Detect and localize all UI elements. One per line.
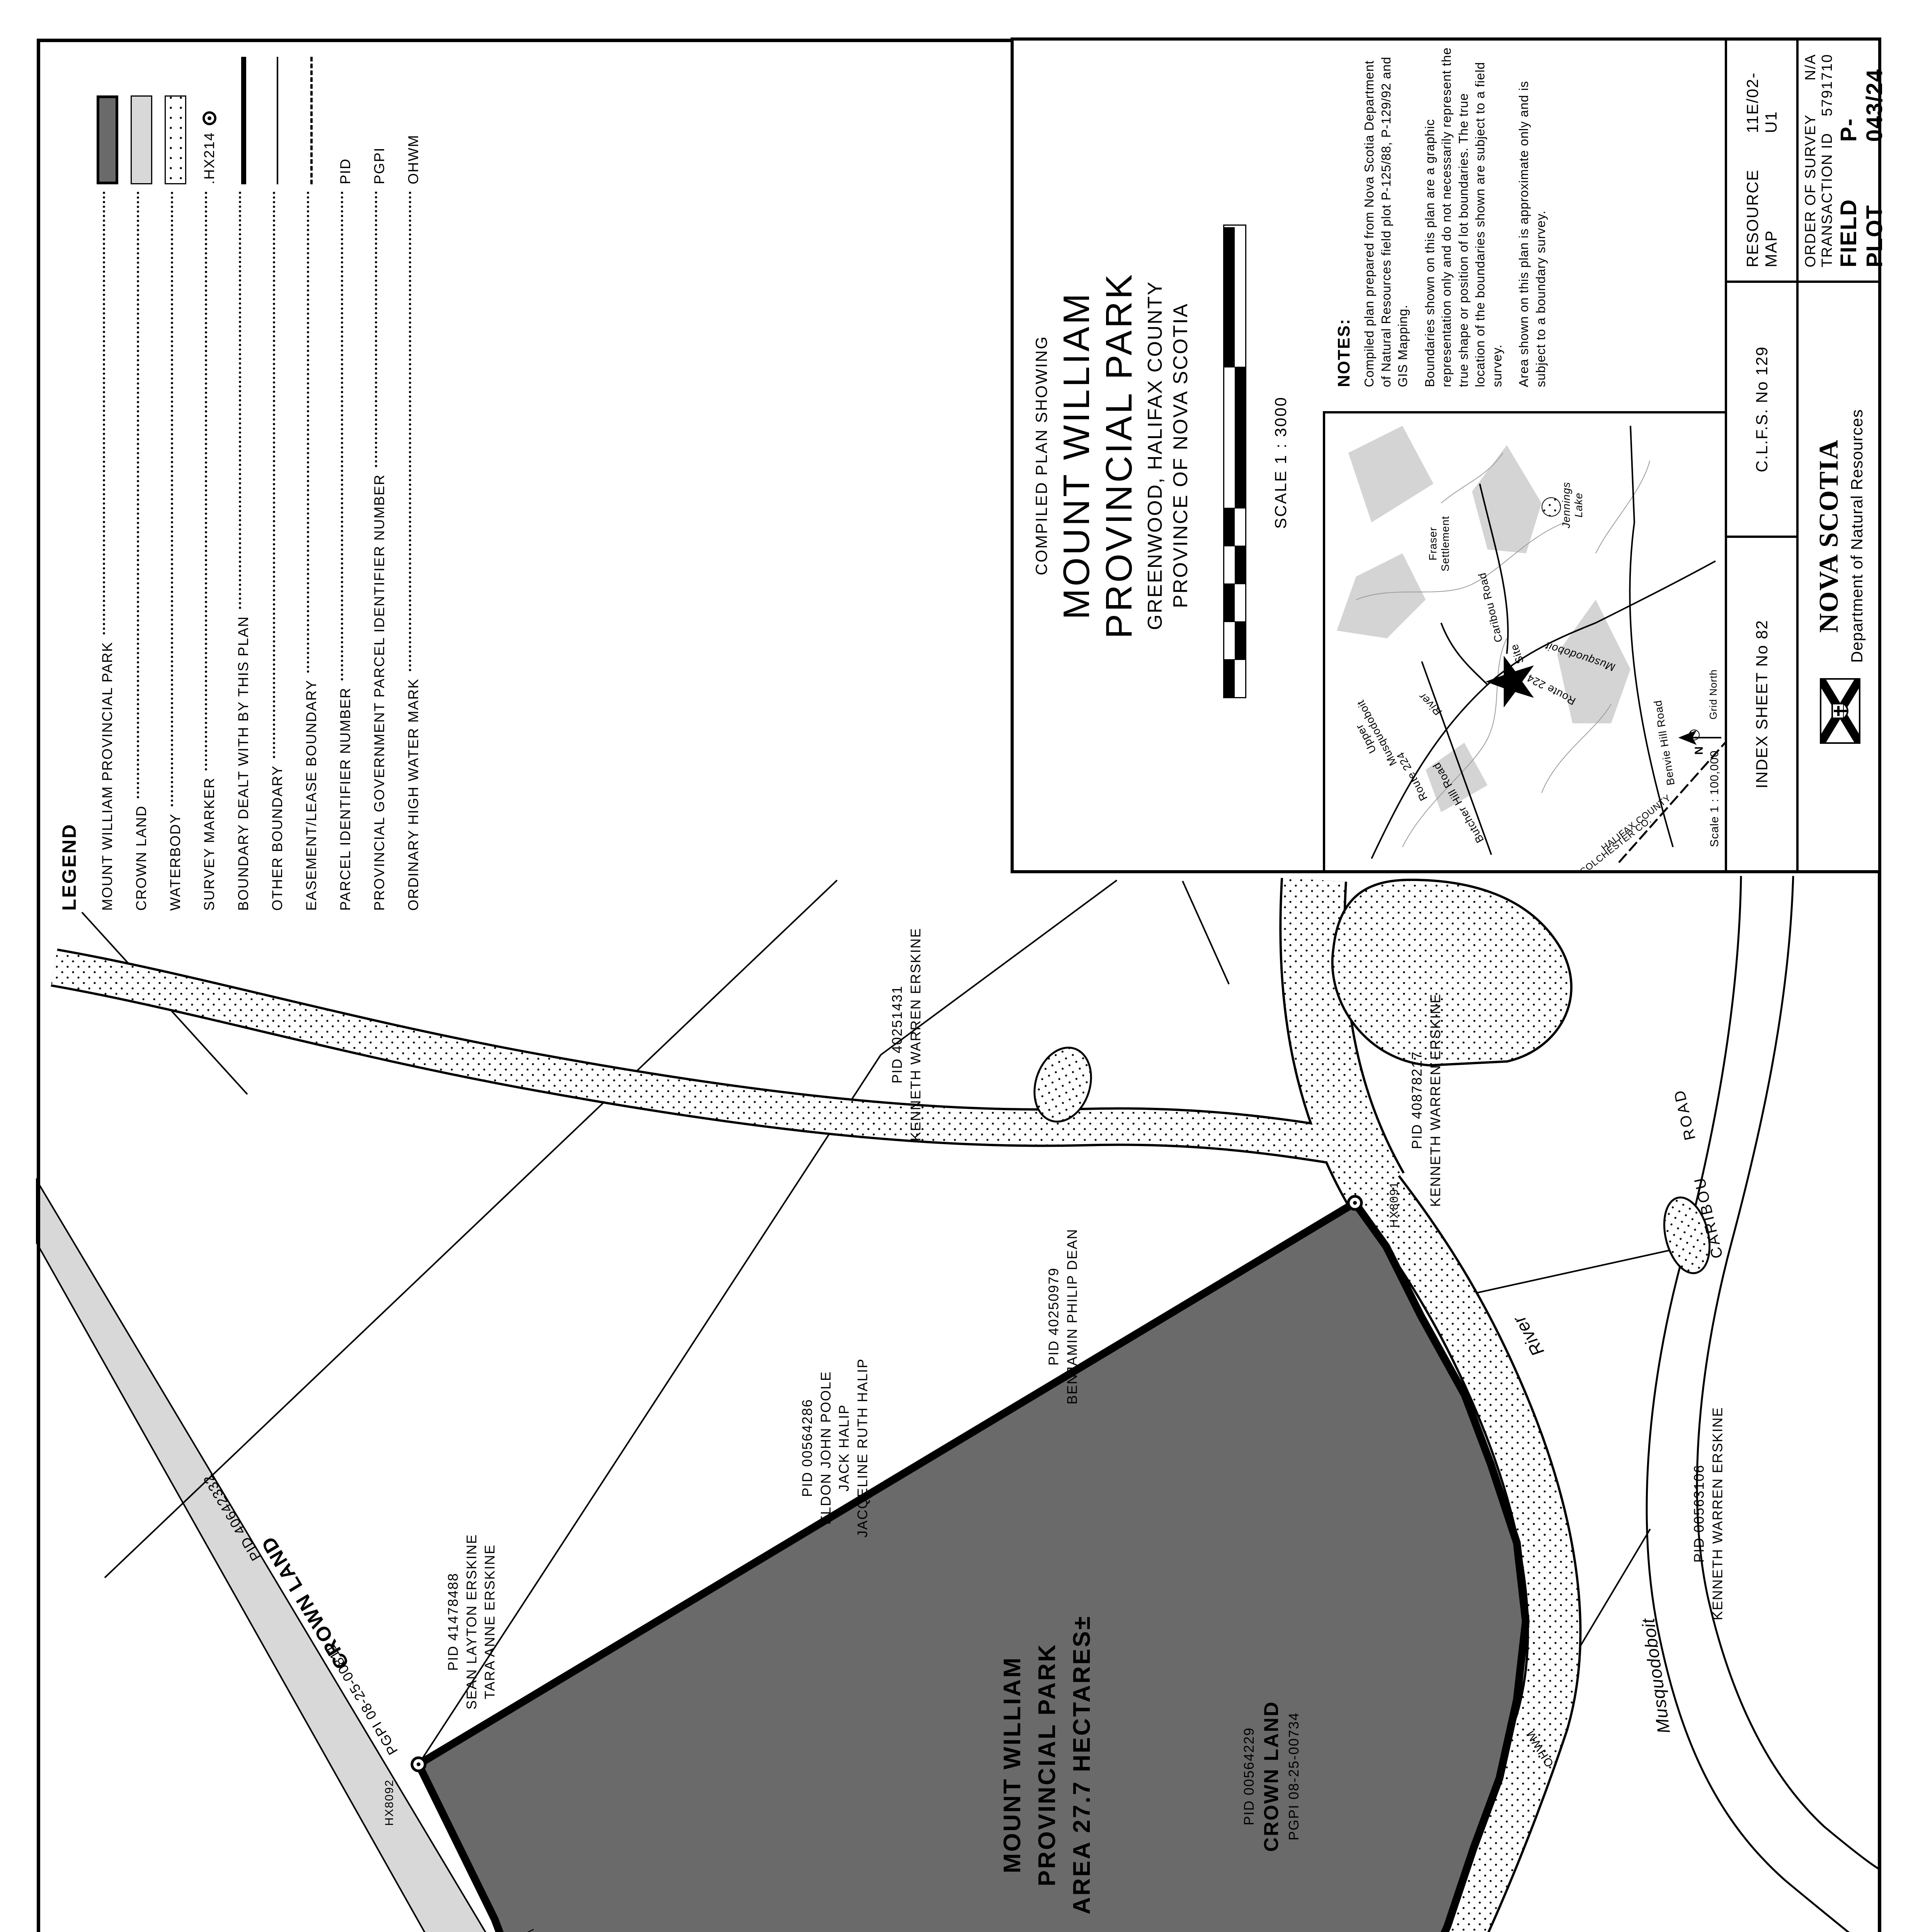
title-block: COMPILED PLAN SHOWING MOUNT WILLIAM PROV… — [1011, 37, 1881, 873]
notes: NOTES: Compiled plan prepared from Nova … — [1334, 47, 1559, 387]
legend-item: EASEMENT/LEASE BOUNDARY — [294, 45, 328, 911]
inset-label: JenningsLake — [1560, 482, 1585, 528]
legend-item: WATERBODY — [158, 45, 192, 911]
nova-scotia-flag-icon — [1820, 678, 1860, 744]
legend: LEGEND MOUNT WILLIAM PROVINCIAL PARK CRO… — [58, 45, 431, 911]
note-paragraph: Area shown on this plan is approximate o… — [1515, 47, 1549, 387]
waterbody-swatch-icon — [165, 95, 186, 184]
thick-line-icon — [241, 57, 246, 184]
crown-swatch-icon — [131, 95, 152, 184]
resource-map-cell: RESOURCE MAP11E/02-U1 — [1725, 41, 1796, 283]
inset-north-letter: N — [1693, 746, 1706, 755]
clfs-cell: C.L.F.S. No 129 — [1725, 283, 1796, 538]
plan-sub-2: PROVINCE OF NOVA SCOTIA — [1169, 41, 1192, 870]
scale-bar — [1223, 224, 1246, 698]
legend-item: PARCEL IDENTIFIER NUMBER PID — [328, 45, 362, 911]
plan-sub-1: GREENWOOD, HALIFAX COUNTY — [1144, 41, 1167, 870]
agency-cell: NOVA SCOTIA Department of Natural Resour… — [1796, 283, 1881, 870]
survey-marker-icon — [201, 110, 218, 127]
dashed-line-icon — [310, 57, 313, 184]
info-row-top: INDEX SHEET No 82 C.L.F.S. No 129 RESOUR… — [1725, 41, 1796, 870]
plan-title-2: PROVINCIAL PARK — [1098, 41, 1140, 870]
park-swatch-icon — [97, 95, 118, 184]
legend-item: CROWN LAND — [124, 45, 158, 911]
scale-text: SCALE 1 : 3000 — [1271, 396, 1290, 529]
department-name: Department of Natural Resources — [1848, 409, 1866, 663]
note-paragraph: Boundaries shown on this plan are a grap… — [1421, 47, 1506, 387]
compiled-plan-showing: COMPILED PLAN SHOWING — [1032, 41, 1051, 870]
field-plot-cell: ORDER OF SURVEYN/A TRANSACTION ID5791710… — [1796, 41, 1881, 283]
scanned-survey-plan: PID 40251431KENNETH WARREN ERSKINE PID 4… — [0, 0, 1918, 1932]
park-title-label: MOUNT WILLIAMPROVINCIAL PARKAREA 27.7 HE… — [995, 1615, 1099, 1915]
legend-item: ORDINARY HIGH WATER MARK OHWM — [397, 45, 431, 911]
inset-scale-label: Scale 1 : 100,000 — [1708, 750, 1722, 847]
inset-grid-north-label: Grid North — [1708, 669, 1719, 719]
legend-item: SURVEY MARKER .HX214 — [192, 45, 226, 911]
legend-title: LEGEND — [58, 45, 80, 911]
legend-item: BOUNDARY DEALT WITH BY THIS PLAN — [226, 45, 260, 911]
parcel-label: PID 40878217KENNETH WARREN ERSKINE — [1407, 993, 1444, 1207]
parcel-label: PID 40250979BENJAMIN PHILIP DEAN — [1044, 1228, 1081, 1404]
plan-sheet: PID 40251431KENNETH WARREN ERSKINE PID 4… — [0, 0, 1918, 1932]
legend-item: MOUNT WILLIAM PROVINCIAL PARK — [90, 45, 124, 911]
inset-location-map: UpperMusquodoboit Route 224 Butcher Hill… — [1323, 411, 1727, 870]
marker-label-hx8092: HX8092 — [382, 1779, 397, 1826]
parcel-label: PID 41478488SEAN LAYTON ERSKINE TARA ANN… — [444, 1534, 499, 1710]
inset-label: FraserSettlement — [1427, 516, 1452, 571]
marker-label-hx8091: HX8091 — [1387, 1181, 1402, 1228]
notes-heading: NOTES: — [1334, 47, 1354, 387]
index-sheet-cell: INDEX SHEET No 82 — [1725, 538, 1796, 870]
parcel-label: PID 00564286ELDON JOHN POOLE JACK HALIPJ… — [798, 1358, 871, 1537]
inset-north-arrow — [1679, 731, 1721, 745]
legend-item: OTHER BOUNDARY — [260, 45, 294, 911]
plan-title-1: MOUNT WILLIAM — [1055, 41, 1098, 870]
legend-item: PROVINCIAL GOVERNMENT PARCEL IDENTIFIER … — [362, 45, 397, 911]
parcel-label: PID 40251431KENNETH WARREN ERSKINE — [888, 928, 924, 1141]
agency-wordmark: NOVA SCOTIA — [1814, 439, 1845, 633]
note-paragraph: Compiled plan prepared from Nova Scotia … — [1361, 47, 1411, 387]
parcel-label: PID 00563106KENNETH WARREN ERSKINE — [1690, 1407, 1726, 1621]
info-row-bottom: NOVA SCOTIA Department of Natural Resour… — [1796, 41, 1881, 870]
park-pid-label: PID 00564229CROWN LANDPGPI 08-25-00734 — [1240, 1701, 1303, 1852]
thin-line-icon — [277, 57, 278, 184]
